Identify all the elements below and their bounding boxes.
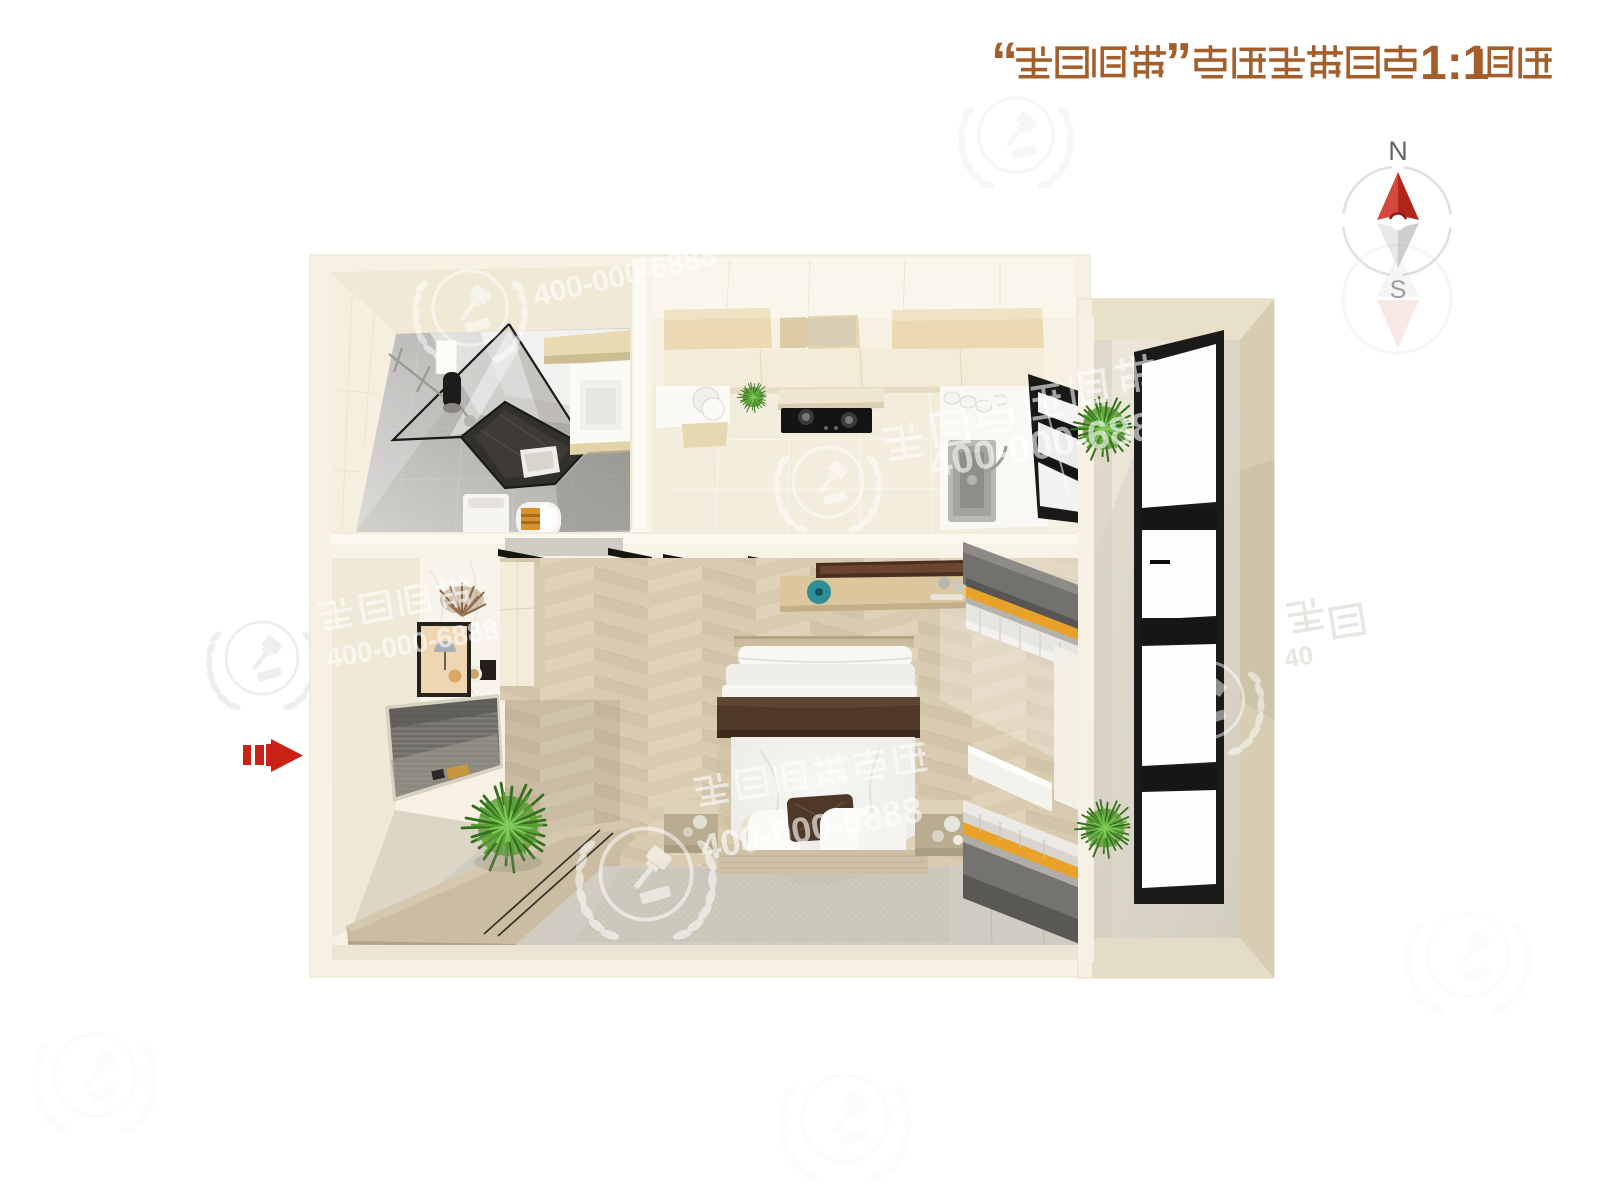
svg-text:N: N: [1388, 136, 1408, 166]
svg-text:1:1: 1:1: [1420, 37, 1489, 90]
svg-text:40: 40: [1282, 639, 1316, 674]
svg-text:”: ”: [1165, 32, 1192, 92]
svg-text:“: “: [991, 32, 1018, 92]
